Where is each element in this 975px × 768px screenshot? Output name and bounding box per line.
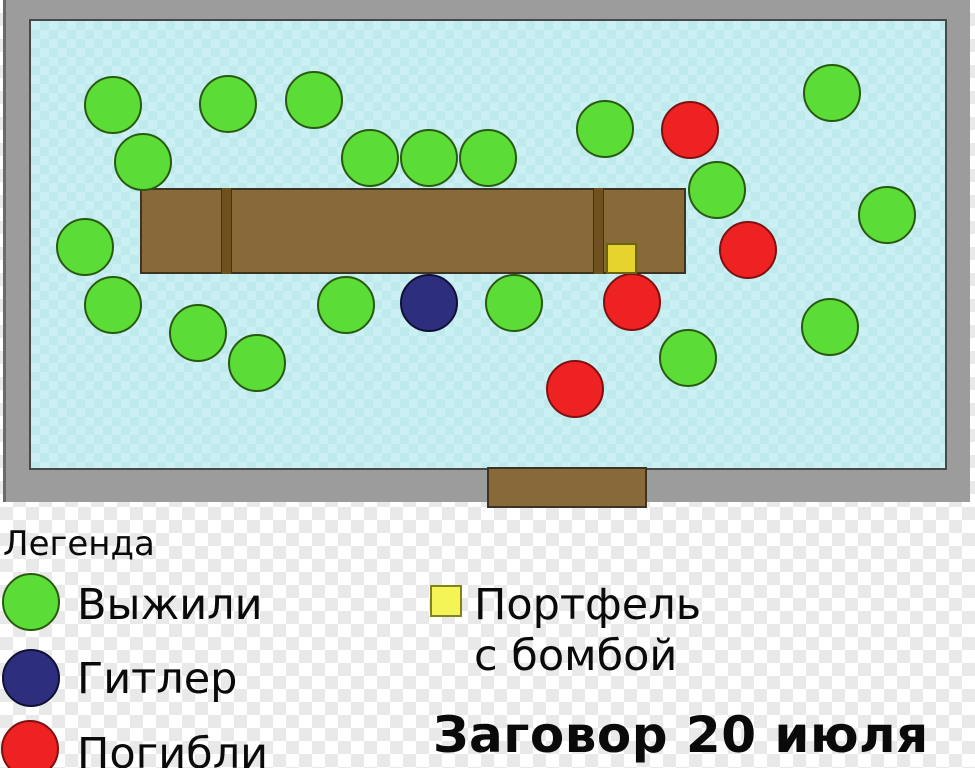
person-marker-died bbox=[719, 221, 777, 279]
legend-swatch-died bbox=[1, 720, 59, 768]
legend-label-hitler: Гитлер bbox=[77, 654, 237, 704]
page-title: Заговор 20 июля bbox=[433, 706, 929, 764]
person-marker-hitler bbox=[400, 274, 458, 332]
door bbox=[487, 467, 647, 508]
table-divider-right bbox=[593, 188, 604, 274]
person-marker-survived bbox=[317, 276, 375, 334]
legend-swatch-briefcase bbox=[430, 585, 462, 617]
legend-swatch-survived bbox=[2, 573, 60, 631]
person-marker-survived bbox=[858, 186, 916, 244]
legend-label-briefcase: Портфель с бомбой bbox=[474, 580, 701, 682]
legend-title: Легенда bbox=[3, 524, 155, 564]
person-marker-survived bbox=[285, 71, 343, 129]
person-marker-survived bbox=[114, 133, 172, 191]
person-marker-survived bbox=[803, 64, 861, 122]
diagram-page: Легенда Выжили Гитлер Погибли Портфель с… bbox=[0, 0, 975, 768]
person-marker-survived bbox=[228, 334, 286, 392]
legend-swatch-hitler bbox=[2, 649, 60, 707]
briefcase-marker bbox=[606, 243, 637, 274]
legend-label-briefcase-line2: с бомбой bbox=[474, 631, 701, 682]
person-marker-survived bbox=[341, 129, 399, 187]
person-marker-survived bbox=[56, 218, 114, 276]
person-marker-survived bbox=[459, 129, 517, 187]
person-marker-survived bbox=[400, 129, 458, 187]
person-marker-survived bbox=[801, 298, 859, 356]
table-divider-left bbox=[221, 188, 232, 274]
person-marker-survived bbox=[84, 76, 142, 134]
person-marker-survived bbox=[485, 274, 543, 332]
legend-label-died: Погибли bbox=[77, 729, 268, 768]
person-marker-survived bbox=[169, 304, 227, 362]
person-marker-died bbox=[661, 101, 719, 159]
legend-label-survived: Выжили bbox=[77, 580, 263, 630]
person-marker-survived bbox=[199, 75, 257, 133]
person-marker-survived bbox=[688, 161, 746, 219]
person-marker-survived bbox=[84, 276, 142, 334]
person-marker-died bbox=[546, 360, 604, 418]
person-marker-died bbox=[603, 273, 661, 331]
legend-label-briefcase-line1: Портфель bbox=[474, 580, 701, 631]
person-marker-survived bbox=[576, 100, 634, 158]
person-marker-survived bbox=[659, 329, 717, 387]
